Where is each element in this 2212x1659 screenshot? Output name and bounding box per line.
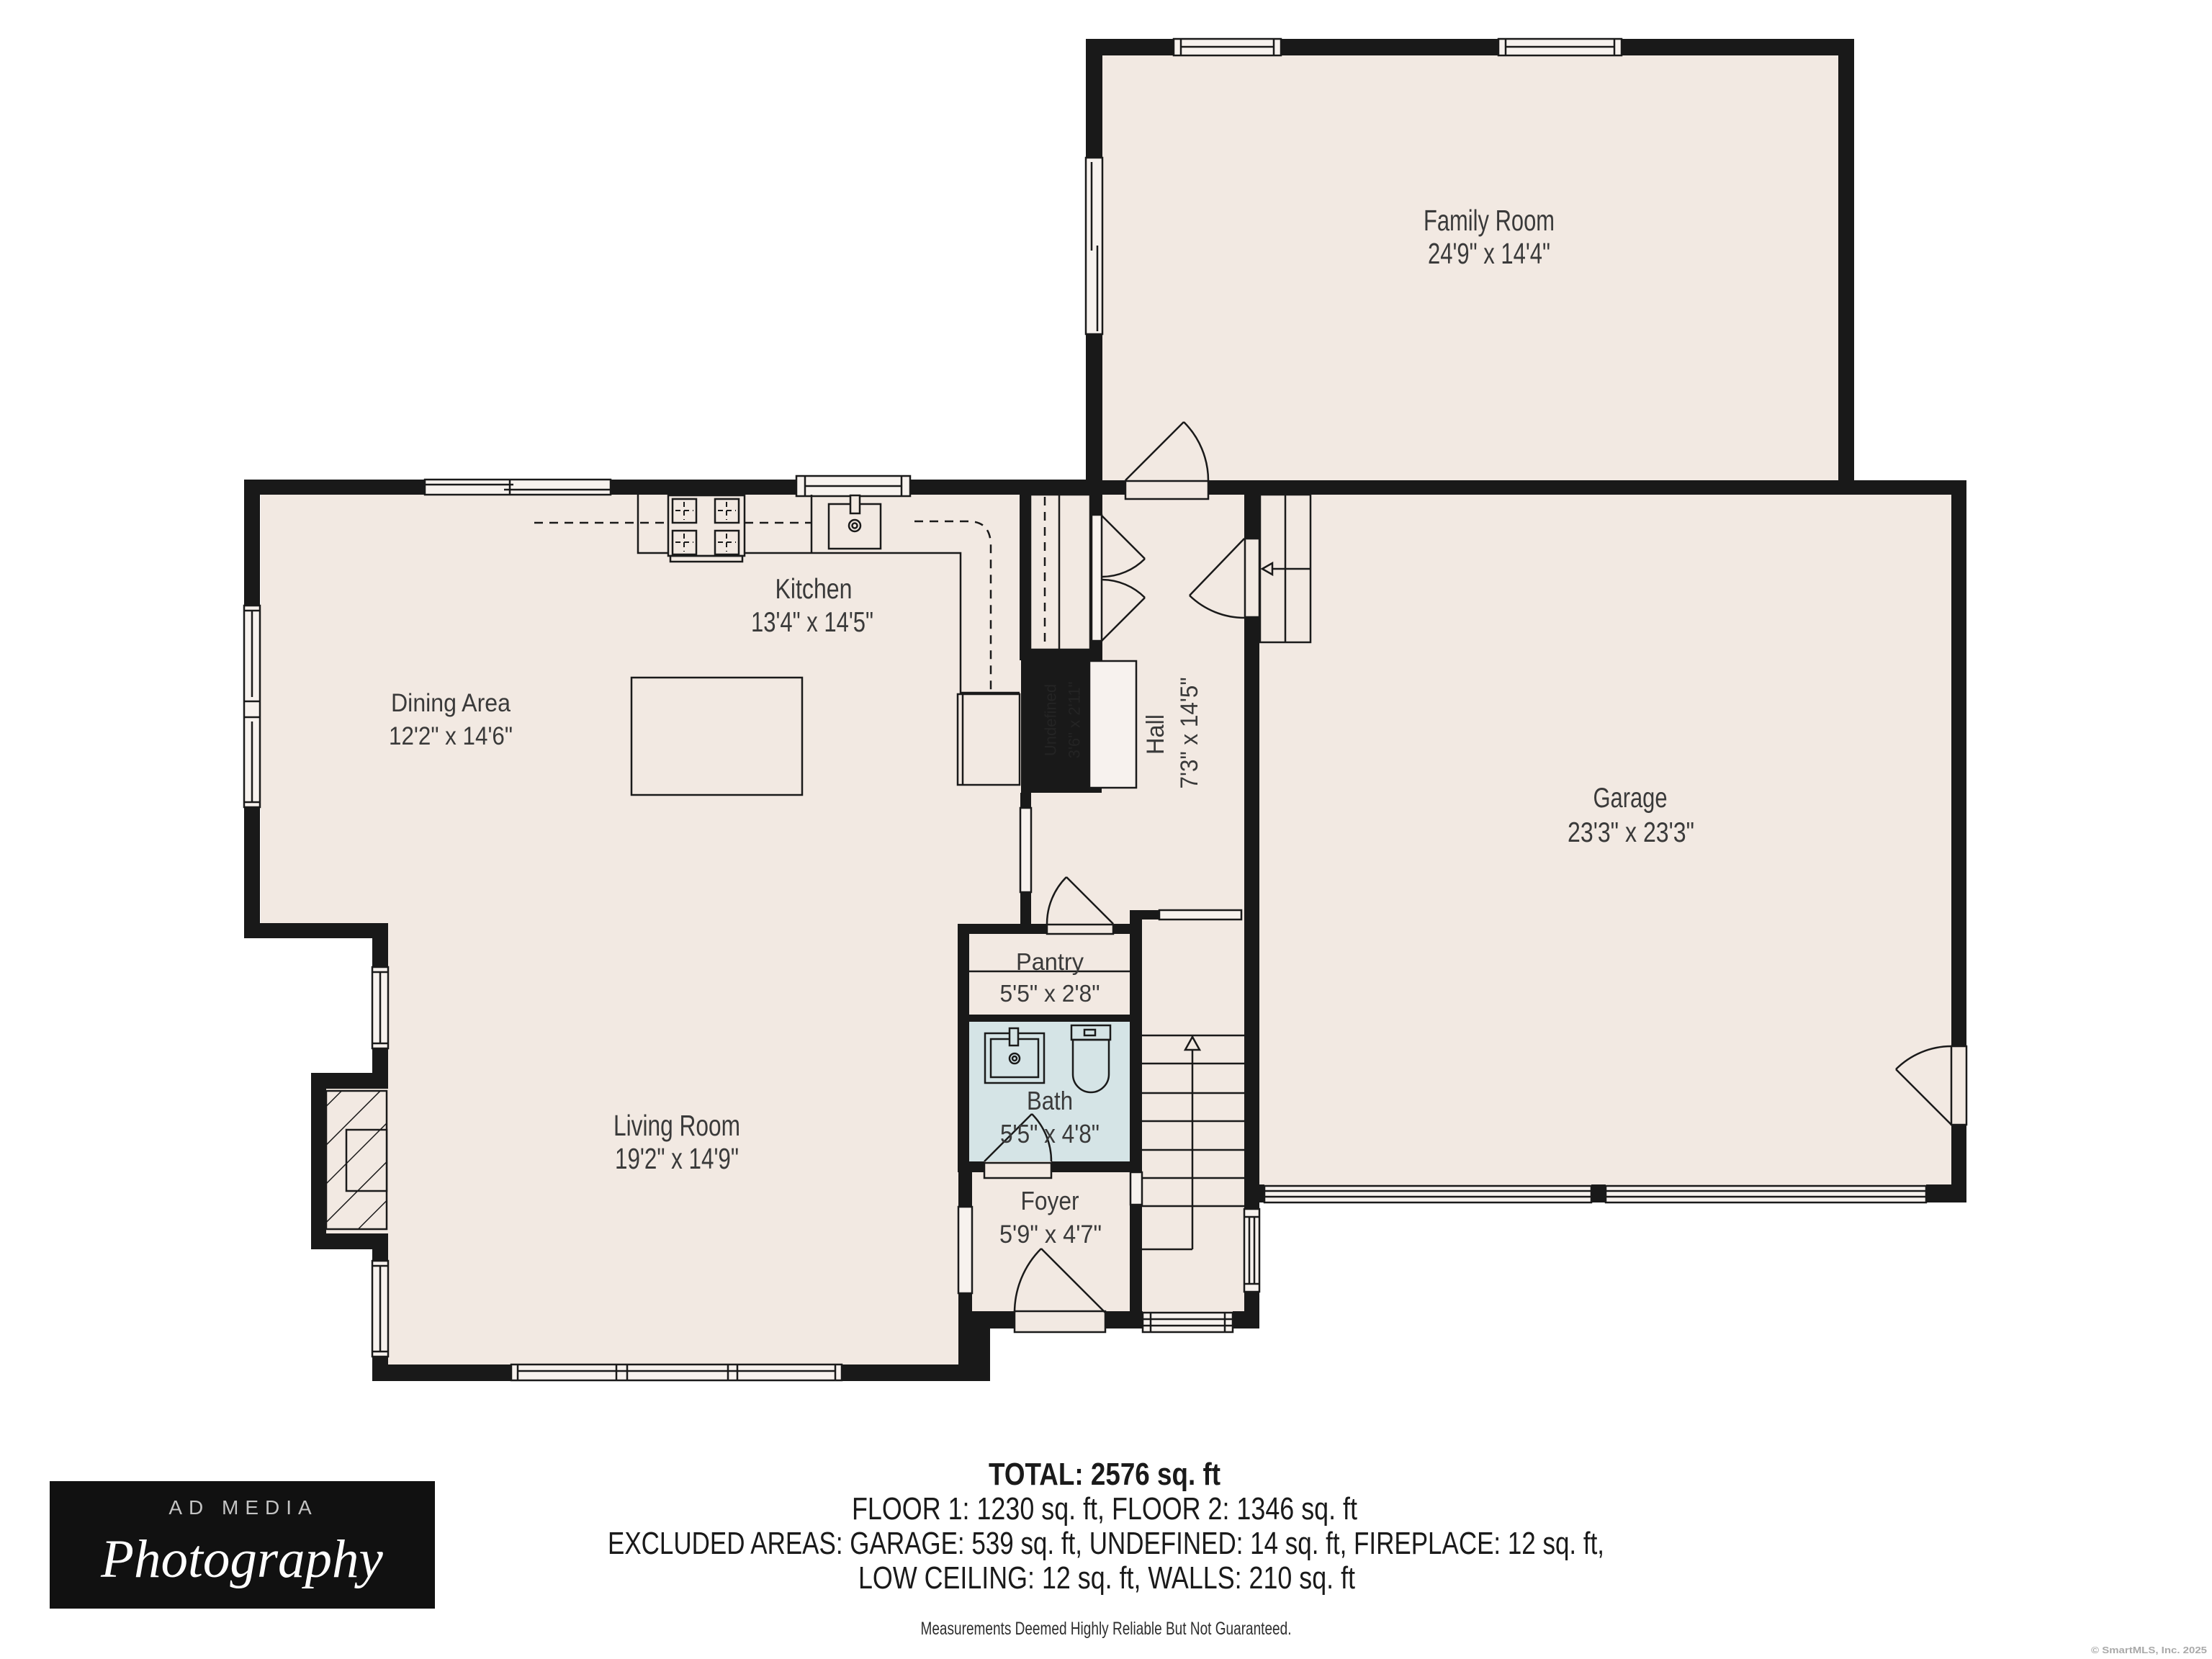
svg-text:5'5" x 4'8": 5'5" x 4'8" xyxy=(1000,1119,1100,1148)
svg-text:LOW CEILING: 12 sq. ft, WALLS:: LOW CEILING: 12 sq. ft, WALLS: 210 sq. f… xyxy=(858,1560,1355,1596)
svg-text:Family Room: Family Room xyxy=(1424,204,1555,237)
svg-text:Pantry: Pantry xyxy=(1016,948,1084,975)
svg-text:24'9" x 14'4": 24'9" x 14'4" xyxy=(1428,237,1550,270)
svg-text:5'9" x 4'7": 5'9" x 4'7" xyxy=(999,1220,1102,1249)
svg-text:EXCLUDED AREAS: GARAGE: 539 sq: EXCLUDED AREAS: GARAGE: 539 sq. ft, UNDE… xyxy=(608,1526,1604,1561)
svg-text:13'4" x 14'5": 13'4" x 14'5" xyxy=(751,607,873,638)
svg-text:Garage: Garage xyxy=(1593,783,1668,814)
svg-text:Bath: Bath xyxy=(1027,1086,1073,1115)
svg-text:Living Room: Living Room xyxy=(613,1109,740,1142)
svg-text:7'3" x 14'5": 7'3" x 14'5" xyxy=(1176,678,1203,789)
svg-text:Undefined: Undefined xyxy=(1042,684,1060,756)
svg-text:19'2" x 14'9": 19'2" x 14'9" xyxy=(615,1142,739,1175)
svg-text:5'5" x 2'8": 5'5" x 2'8" xyxy=(1000,980,1100,1007)
svg-text:3'6" x 2'11": 3'6" x 2'11" xyxy=(1066,682,1084,759)
svg-text:Hall: Hall xyxy=(1142,714,1169,755)
svg-text:Kitchen: Kitchen xyxy=(775,574,853,605)
svg-text:Photography: Photography xyxy=(100,1529,383,1589)
svg-text:Dining Area: Dining Area xyxy=(391,689,511,717)
svg-text:23'3" x 23'3": 23'3" x 23'3" xyxy=(1568,817,1694,848)
svg-text:12'2" x 14'6": 12'2" x 14'6" xyxy=(389,722,513,750)
svg-text:Measurements Deemed Highly Rel: Measurements Deemed Highly Reliable But … xyxy=(921,1619,1292,1639)
svg-text:Foyer: Foyer xyxy=(1021,1186,1079,1215)
svg-text:© SmartMLS, Inc. 2025: © SmartMLS, Inc. 2025 xyxy=(2091,1645,2207,1655)
svg-text:FLOOR 1: 1230 sq. ft, FLOOR 2:: FLOOR 1: 1230 sq. ft, FLOOR 2: 1346 sq. … xyxy=(852,1491,1357,1527)
svg-text:AD MEDIA: AD MEDIA xyxy=(168,1496,318,1519)
svg-text:TOTAL: 2576 sq. ft: TOTAL: 2576 sq. ft xyxy=(989,1457,1220,1492)
